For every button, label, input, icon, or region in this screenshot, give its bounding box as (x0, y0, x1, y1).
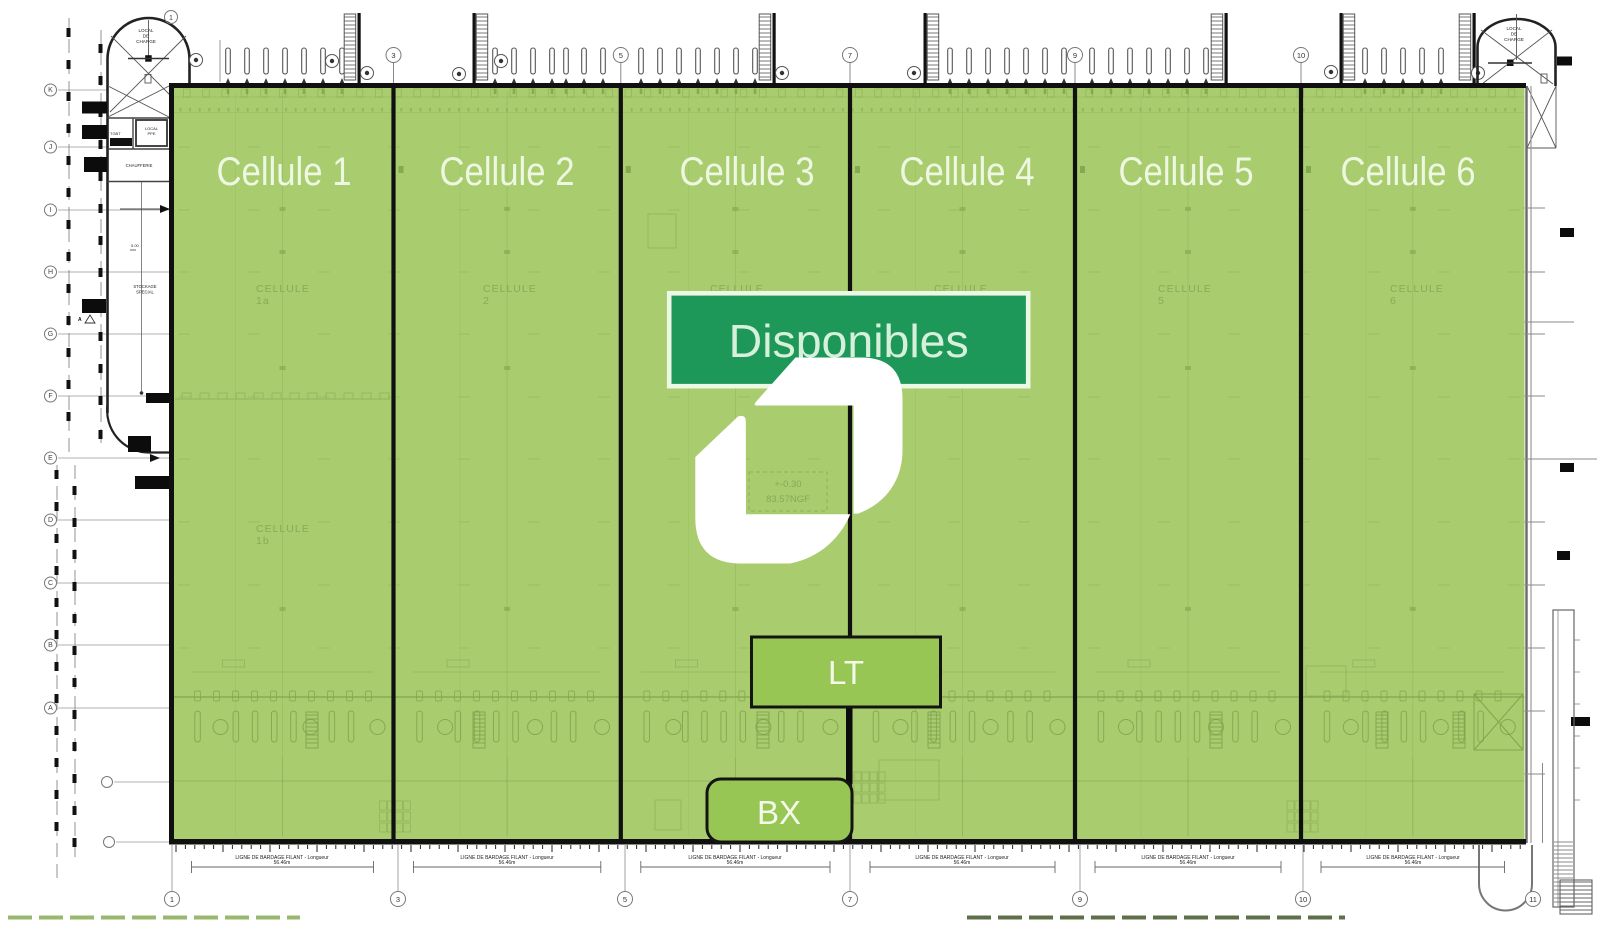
svg-text:E: E (48, 455, 53, 462)
svg-text:7: 7 (848, 895, 852, 904)
svg-text:CELLULE: CELLULE (256, 523, 310, 535)
svg-text:F: F (48, 393, 52, 400)
svg-text:Cellule 5: Cellule 5 (1119, 150, 1254, 194)
svg-text:CHARGE: CHARGE (136, 39, 156, 44)
svg-text:56.46m: 56.46m (1405, 860, 1422, 866)
svg-text:CELLULE: CELLULE (1390, 283, 1444, 295)
svg-text:CELLULE: CELLULE (1158, 283, 1212, 295)
svg-text:CHARGE: CHARGE (1504, 37, 1524, 42)
svg-text:BX: BX (757, 794, 801, 831)
svg-text:Cellule 1: Cellule 1 (217, 150, 352, 194)
svg-text:CHAUFFERIE: CHAUFFERIE (126, 163, 153, 168)
svg-text:11: 11 (1529, 895, 1537, 904)
svg-text:9: 9 (1073, 51, 1077, 60)
svg-text:1: 1 (169, 15, 173, 22)
svg-text:Cellule 6: Cellule 6 (1341, 150, 1476, 194)
svg-text:5: 5 (1158, 295, 1165, 307)
svg-text:TGBT: TGBT (110, 131, 121, 136)
svg-text:3: 3 (391, 51, 395, 60)
svg-text:3: 3 (396, 895, 400, 904)
svg-text:G: G (48, 331, 53, 338)
svg-text:1: 1 (170, 895, 174, 904)
svg-text:LOCAL: LOCAL (1506, 26, 1522, 31)
svg-text:9: 9 (1078, 895, 1082, 904)
svg-text:56.46m: 56.46m (274, 860, 291, 866)
svg-text:STOCKAGE: STOCKAGE (133, 284, 156, 289)
svg-text:7: 7 (848, 51, 852, 60)
svg-text:5: 5 (623, 895, 627, 904)
svg-text:1b: 1b (256, 535, 270, 547)
svg-text:10: 10 (1297, 51, 1305, 60)
svg-text:1a: 1a (256, 295, 270, 307)
svg-text:D: D (48, 517, 53, 524)
svg-text:I: I (50, 207, 52, 214)
svg-text:56.46m: 56.46m (954, 860, 971, 866)
svg-text:CELLULE: CELLULE (256, 283, 310, 295)
svg-text:A: A (48, 705, 53, 712)
svg-text:5.00: 5.00 (131, 243, 140, 248)
svg-text:PPE: PPE (147, 131, 155, 136)
svg-text:CELLULE: CELLULE (483, 283, 537, 295)
svg-text:Cellule 3: Cellule 3 (680, 150, 815, 194)
svg-text:K: K (48, 87, 53, 94)
svg-text:5: 5 (619, 51, 623, 60)
svg-text:2: 2 (483, 295, 490, 307)
svg-text:LOCAL: LOCAL (138, 28, 154, 33)
svg-text:LT: LT (828, 654, 864, 691)
svg-text:DE: DE (1511, 32, 1517, 37)
svg-text:J: J (49, 144, 53, 151)
svg-text:H: H (48, 269, 53, 276)
svg-text:56.46m: 56.46m (1180, 860, 1197, 866)
svg-text:SPECIAL: SPECIAL (136, 290, 154, 295)
svg-text:B: B (48, 642, 53, 649)
svg-text:56.46m: 56.46m (727, 860, 744, 866)
svg-text:A: A (78, 317, 82, 323)
svg-text:+-0.30: +-0.30 (774, 479, 801, 490)
svg-text:C: C (48, 580, 53, 587)
svg-text:6: 6 (1390, 295, 1397, 307)
svg-text:83.57NGF: 83.57NGF (766, 494, 810, 505)
svg-text:Cellule 4: Cellule 4 (900, 150, 1035, 194)
svg-text:Cellule 2: Cellule 2 (440, 150, 575, 194)
svg-text:10: 10 (1299, 895, 1307, 904)
svg-text:56.46m: 56.46m (499, 860, 516, 866)
svg-text:DE: DE (143, 34, 149, 39)
